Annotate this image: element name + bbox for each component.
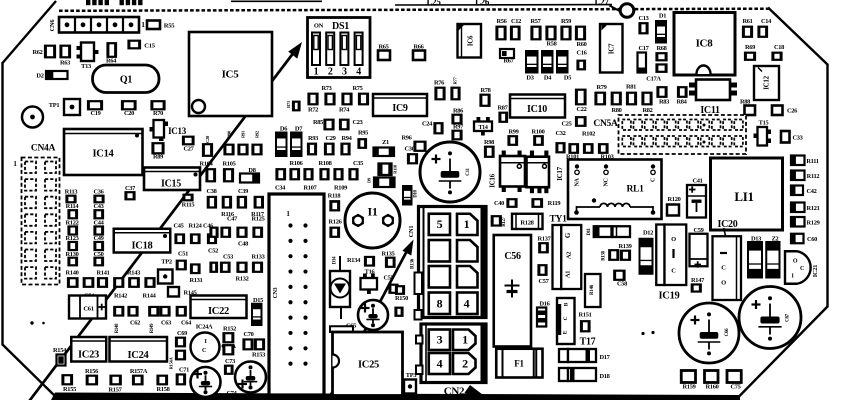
svg-text:IC24: IC24: [128, 350, 150, 361]
svg-text:C20: C20: [124, 110, 134, 117]
svg-text:C37: C37: [125, 185, 136, 192]
svg-text:C75: C75: [730, 384, 740, 391]
svg-text:C36: C36: [93, 189, 104, 196]
svg-text:R63: R63: [60, 60, 70, 67]
svg-text:R110: R110: [393, 164, 398, 174]
svg-text:A2: A2: [566, 252, 573, 259]
svg-text:IC12: IC12: [763, 75, 771, 89]
svg-text:D1: D1: [659, 13, 666, 20]
svg-text:R154: R154: [53, 347, 67, 354]
svg-text:C60: C60: [807, 236, 817, 243]
svg-text:R59: R59: [561, 18, 571, 25]
svg-text:R133: R133: [251, 254, 264, 261]
svg-text:R128: R128: [520, 220, 534, 227]
svg-text:RL1: RL1: [626, 185, 644, 195]
svg-text:C: C: [651, 178, 657, 182]
svg-text:C55: C55: [383, 275, 393, 282]
svg-text:T15: T15: [759, 120, 769, 127]
svg-text:4: 4: [437, 357, 443, 371]
svg-text:R120: R120: [667, 196, 680, 203]
svg-text:C14: C14: [761, 18, 772, 25]
svg-text:C48: C48: [238, 241, 248, 248]
svg-text:CN5A: CN5A: [593, 119, 618, 129]
svg-text:IC15: IC15: [161, 179, 181, 190]
svg-text:R114: R114: [66, 203, 80, 210]
svg-text:C53: C53: [223, 254, 233, 261]
svg-text:IC19: IC19: [659, 291, 680, 302]
svg-text:IC23: IC23: [78, 350, 99, 361]
svg-text:R148: R148: [115, 323, 120, 333]
svg-text:C74: C74: [226, 390, 237, 397]
svg-text:NA: NA: [575, 178, 581, 187]
svg-text:R86: R86: [453, 108, 464, 115]
svg-text:C52: C52: [208, 248, 218, 255]
svg-text:R64: R64: [106, 58, 117, 65]
svg-text:C: C: [563, 316, 569, 320]
svg-text:R68: R68: [656, 45, 666, 52]
svg-text:R80: R80: [611, 107, 621, 114]
svg-text:R113: R113: [65, 189, 78, 196]
svg-text:C62: C62: [130, 320, 140, 327]
svg-text:D12: D12: [643, 230, 653, 237]
svg-text:R156: R156: [85, 368, 99, 375]
svg-text:IC21: IC21: [812, 265, 819, 278]
svg-text:O: O: [671, 236, 676, 243]
svg-text:R99: R99: [508, 129, 518, 136]
svg-text:R84: R84: [676, 99, 687, 106]
svg-text:C17A: C17A: [646, 76, 661, 83]
svg-text:C45: C45: [173, 223, 183, 230]
svg-text:R136: R136: [411, 258, 416, 269]
svg-text:L26: L26: [475, 0, 490, 7]
svg-text:IC20: IC20: [718, 219, 738, 230]
svg-text:R139: R139: [618, 243, 631, 250]
svg-text:TP2: TP2: [161, 259, 172, 266]
svg-text:1: 1: [464, 217, 470, 231]
svg-text:R104: R104: [199, 161, 213, 168]
svg-text:IC25: IC25: [358, 360, 379, 371]
svg-text:R89: R89: [153, 154, 163, 161]
svg-text:D5: D5: [564, 75, 571, 82]
svg-text:C58: C58: [617, 281, 627, 288]
svg-text:C: C: [202, 348, 206, 354]
svg-text:C61: C61: [83, 306, 93, 313]
svg-text:ON: ON: [314, 23, 324, 30]
svg-text:1: 1: [314, 67, 319, 78]
svg-text:R82: R82: [642, 107, 652, 114]
svg-text:R79: R79: [596, 84, 606, 91]
svg-text:R138: R138: [602, 250, 607, 260]
svg-text:C63: C63: [161, 320, 171, 327]
svg-text:R69: R69: [745, 44, 755, 51]
svg-text:IC22: IC22: [208, 306, 229, 317]
svg-text:R159: R159: [682, 384, 695, 391]
svg-text:CN1: CN1: [408, 226, 415, 238]
svg-text:R112: R112: [807, 173, 820, 180]
svg-text:C29: C29: [325, 135, 335, 142]
svg-text:C: C: [721, 265, 726, 272]
svg-text:R149: R149: [150, 323, 155, 333]
svg-text:R57: R57: [530, 18, 541, 25]
svg-text:C73: C73: [225, 358, 235, 365]
svg-text:C32: C32: [555, 130, 565, 137]
svg-text:C34: C34: [275, 185, 286, 192]
svg-text:C18: C18: [774, 44, 784, 51]
svg-text:IC24A: IC24A: [196, 324, 213, 331]
svg-text:R154A: R154A: [169, 357, 174, 370]
svg-text:R75: R75: [352, 85, 362, 92]
svg-text:CN3: CN3: [273, 287, 279, 298]
svg-text:R155: R155: [63, 386, 76, 393]
svg-text:C69: C69: [177, 330, 187, 337]
svg-text:D18: D18: [599, 373, 609, 380]
svg-text:R142: R142: [114, 293, 127, 300]
svg-text:TP3: TP3: [406, 372, 417, 379]
svg-text:R85: R85: [313, 119, 323, 126]
svg-text:R118: R118: [328, 193, 341, 200]
svg-text:C19: C19: [90, 110, 100, 117]
svg-text:R90: R90: [227, 130, 232, 138]
svg-text:T13: T13: [81, 63, 91, 70]
svg-text:R125: R125: [251, 216, 264, 223]
svg-text:R78: R78: [480, 87, 490, 94]
svg-text:1: 1: [462, 333, 468, 347]
svg-text:R152: R152: [223, 326, 236, 333]
svg-text:R58: R58: [546, 41, 556, 48]
svg-text:R94: R94: [341, 135, 352, 142]
svg-text:8: 8: [437, 297, 443, 311]
svg-text:IC10: IC10: [527, 104, 547, 115]
svg-text:D11: D11: [587, 228, 592, 236]
svg-text:D6: D6: [280, 126, 288, 133]
svg-text:3: 3: [342, 67, 347, 78]
svg-text:R77: R77: [453, 76, 458, 84]
svg-text:C38: C38: [206, 188, 216, 195]
svg-text:R121: R121: [806, 205, 819, 212]
svg-text:R132: R132: [235, 276, 248, 283]
svg-text:IC14: IC14: [93, 149, 115, 160]
svg-text:C40: C40: [494, 200, 504, 207]
svg-text:IC16: IC16: [489, 173, 497, 187]
svg-text:R115: R115: [182, 202, 195, 209]
svg-text:D7: D7: [295, 126, 303, 133]
svg-text:IC13: IC13: [168, 126, 187, 136]
svg-text:L25: L25: [426, 0, 441, 7]
svg-text:R119: R119: [548, 200, 561, 207]
svg-text:C70: C70: [243, 331, 253, 338]
svg-text:R127: R127: [502, 216, 507, 226]
svg-text:4: 4: [464, 297, 470, 311]
svg-text:IC17: IC17: [556, 166, 564, 180]
svg-text:R141: R141: [96, 270, 109, 277]
svg-text:C17: C17: [638, 45, 649, 52]
svg-text:CN4A: CN4A: [31, 144, 56, 154]
svg-text:R143: R143: [127, 270, 140, 277]
svg-text:R74: R74: [339, 107, 350, 114]
svg-text:A1: A1: [565, 271, 572, 278]
svg-text:C25: C25: [561, 121, 571, 128]
svg-text:R55: R55: [164, 23, 175, 30]
svg-text:IC18: IC18: [132, 241, 153, 252]
svg-text:R62: R62: [32, 49, 42, 56]
svg-text:R72: R72: [308, 107, 318, 114]
svg-text:C66: C66: [725, 328, 730, 337]
svg-text:C28: C28: [205, 135, 210, 143]
svg-text:R131: R131: [189, 277, 202, 284]
svg-text:R144: R144: [142, 293, 156, 300]
svg-text:T17: T17: [580, 337, 596, 348]
svg-text:R61: R61: [742, 18, 752, 25]
svg-text:I1: I1: [367, 205, 377, 219]
svg-text:D3: D3: [526, 75, 533, 82]
svg-text:R60: R60: [576, 41, 586, 48]
svg-text:C27: C27: [183, 146, 194, 153]
svg-text:R135: R135: [381, 251, 394, 258]
svg-text:C: C: [671, 268, 676, 275]
svg-text:R93: R93: [308, 135, 318, 142]
svg-text:O: O: [721, 280, 726, 287]
svg-text:R124: R124: [188, 223, 202, 230]
svg-text:C41: C41: [692, 178, 702, 185]
svg-text:R151: R151: [578, 312, 591, 319]
svg-text:R56: R56: [496, 18, 507, 25]
svg-text:R71: R71: [286, 100, 291, 108]
svg-text:R137: R137: [537, 236, 551, 243]
svg-text:C47: C47: [227, 216, 238, 223]
svg-text:C64: C64: [181, 320, 192, 327]
svg-text:C39: C39: [238, 188, 248, 195]
svg-text:R108: R108: [318, 160, 331, 167]
svg-text:2: 2: [462, 357, 468, 371]
svg-text:C15: C15: [144, 43, 155, 50]
svg-text:R146: R146: [590, 284, 595, 295]
svg-text:C56: C56: [504, 251, 521, 262]
svg-text:C33: C33: [792, 135, 802, 142]
svg-text:R81: R81: [626, 84, 636, 91]
svg-text:C16: C16: [576, 50, 587, 57]
svg-text:Q1: Q1: [120, 75, 132, 86]
svg-text:LI1: LI1: [734, 189, 753, 204]
svg-text:R134: R134: [347, 257, 361, 264]
svg-text:D14: D14: [333, 256, 338, 264]
svg-text:L27: L27: [594, 0, 609, 7]
svg-text:4: 4: [356, 67, 361, 78]
svg-text:TY1: TY1: [549, 215, 567, 225]
svg-text:F1: F1: [514, 359, 524, 369]
svg-text:1: 1: [141, 20, 145, 29]
svg-text:R160: R160: [705, 384, 718, 391]
svg-text:D17: D17: [599, 354, 610, 361]
svg-text:2: 2: [328, 67, 333, 78]
svg-text:R157A: R157A: [130, 368, 148, 375]
svg-text:R92: R92: [255, 130, 260, 138]
svg-text:O: O: [793, 259, 798, 265]
svg-text:C12: C12: [511, 18, 521, 25]
svg-text:C72: C72: [181, 393, 191, 400]
svg-text:R140: R140: [65, 270, 78, 277]
svg-text:R67: R67: [503, 58, 514, 65]
svg-text:C42: C42: [806, 188, 816, 195]
svg-text:IC8: IC8: [696, 38, 714, 50]
svg-text:D4: D4: [544, 75, 552, 82]
svg-text:CN2: CN2: [444, 386, 465, 398]
svg-text:IC6: IC6: [467, 35, 475, 46]
svg-text:D2: D2: [36, 73, 43, 80]
svg-text:C13: C13: [638, 15, 648, 22]
svg-text:C71: C71: [179, 367, 189, 374]
svg-text:IC5: IC5: [222, 69, 240, 81]
svg-text:R100: R100: [531, 129, 544, 136]
svg-text:IC9: IC9: [392, 103, 408, 114]
svg-text:NC: NC: [604, 178, 610, 186]
svg-text:R98: R98: [484, 139, 494, 146]
svg-text:C24: C24: [422, 121, 433, 128]
svg-text:R102: R102: [582, 131, 595, 138]
svg-text:C22: C22: [576, 106, 586, 113]
svg-text:G: G: [564, 232, 572, 238]
svg-text:C67: C67: [786, 313, 791, 322]
svg-text:CN6: CN6: [49, 19, 56, 32]
svg-text:T14: T14: [478, 125, 487, 131]
svg-text:C43: C43: [93, 203, 103, 210]
svg-text:5: 5: [437, 217, 443, 231]
svg-text:C23: C23: [352, 119, 362, 126]
svg-text:R106: R106: [289, 160, 303, 167]
svg-text:R97: R97: [453, 124, 464, 131]
svg-text:R96: R96: [401, 135, 412, 142]
svg-text:R70: R70: [153, 110, 163, 117]
svg-text:R105: R105: [222, 161, 235, 168]
svg-text:R158: R158: [156, 386, 169, 393]
svg-text:R107: R107: [303, 185, 317, 192]
svg-text:IC7: IC7: [608, 43, 616, 54]
svg-text:R157: R157: [108, 387, 122, 394]
svg-text:C11: C11: [466, 167, 471, 175]
svg-text:C26: C26: [787, 108, 798, 115]
svg-text:R126: R126: [328, 219, 342, 226]
svg-text:R73: R73: [321, 85, 331, 92]
svg-text:R76: R76: [434, 80, 445, 87]
svg-text:Z1: Z1: [382, 139, 389, 146]
svg-text:C: C: [800, 266, 804, 272]
svg-text:R91: R91: [241, 130, 246, 138]
svg-text:C35: C35: [353, 160, 363, 167]
svg-text:C51: C51: [178, 251, 188, 258]
svg-text:R87: R87: [497, 105, 508, 112]
svg-text:C30: C30: [404, 146, 414, 153]
svg-text:DS1: DS1: [332, 21, 349, 32]
svg-text:R83: R83: [659, 99, 669, 106]
svg-text:TP1: TP1: [49, 102, 60, 109]
svg-text:D10: D10: [414, 189, 419, 197]
svg-text:C57: C57: [538, 278, 549, 285]
svg-text:R153: R153: [252, 352, 265, 359]
svg-text:R95: R95: [358, 130, 368, 137]
svg-text:R109: R109: [334, 185, 347, 192]
svg-text:R129: R129: [806, 220, 819, 227]
svg-text:3: 3: [437, 333, 443, 347]
svg-text:R150: R150: [395, 295, 408, 302]
svg-text:R147: R147: [691, 277, 705, 284]
svg-text:R111: R111: [806, 158, 818, 165]
